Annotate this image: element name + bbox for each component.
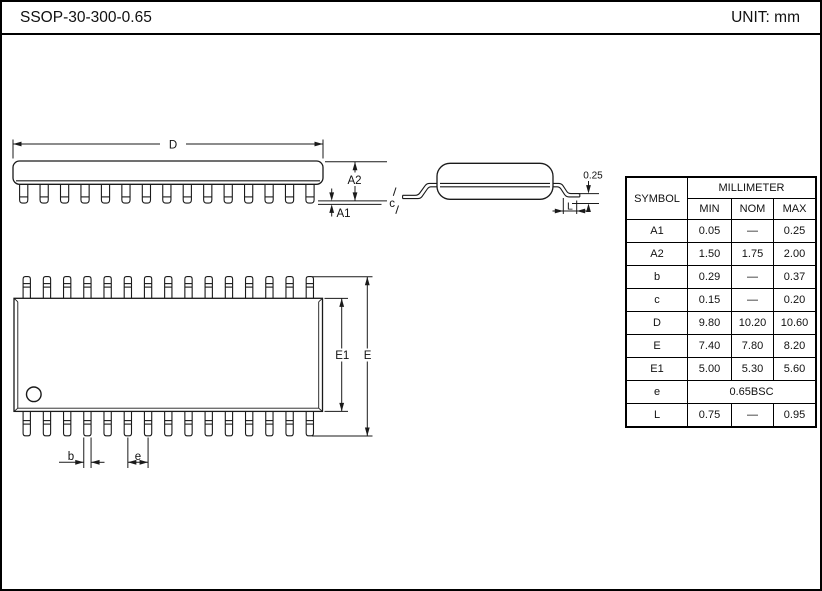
dim-b: b [59, 438, 105, 469]
symbol-cell: A2 [626, 243, 688, 266]
table-row: e 0.65BSC [626, 381, 816, 404]
dim-pitch: e [128, 438, 148, 469]
nom-cell: — [732, 220, 774, 243]
table-header-max: MAX [774, 199, 817, 220]
dim-label-l: L [567, 200, 573, 212]
max-cell: 2.00 [774, 243, 817, 266]
table-header-millimeter: MILLIMETER [688, 177, 817, 199]
symbol-cell: E [626, 335, 688, 358]
table-row: E1 5.00 5.30 5.60 [626, 358, 816, 381]
side-view: D A2 A1 [13, 139, 387, 220]
table-row: A2 1.50 1.75 2.00 [626, 243, 816, 266]
table-row: b 0.29 — 0.37 [626, 266, 816, 289]
min-cell: 9.80 [688, 312, 732, 335]
dim-l: L [553, 198, 588, 214]
nom-cell: 7.80 [732, 335, 774, 358]
nom-cell: 1.75 [732, 243, 774, 266]
symbol-cell: b [626, 266, 688, 289]
top-view: E1 E b [14, 277, 373, 468]
end-view-left-lead [403, 183, 437, 198]
table-header-nom: NOM [732, 199, 774, 220]
dim-label-b: b [68, 451, 74, 463]
dim-d: D [13, 139, 323, 158]
max-cell: 8.20 [774, 335, 817, 358]
nom-cell: 10.20 [732, 312, 774, 335]
symbol-cell: D [626, 312, 688, 335]
table-row: L 0.75 — 0.95 [626, 404, 816, 428]
top-view-pin-row-lower [23, 411, 313, 436]
span-cell: 0.65BSC [688, 381, 817, 404]
max-cell: 0.20 [774, 289, 817, 312]
symbol-cell: E1 [626, 358, 688, 381]
min-cell: 5.00 [688, 358, 732, 381]
top-view-pin-row-upper [23, 277, 313, 299]
nom-cell: 5.30 [732, 358, 774, 381]
table-row: A1 0.05 — 0.25 [626, 220, 816, 243]
max-cell: 5.60 [774, 358, 817, 381]
min-cell: 0.05 [688, 220, 732, 243]
dim-e1: E1 [325, 298, 350, 411]
dimension-table: SYMBOL MILLIMETER MIN NOM MAX A1 0.05 — … [625, 176, 817, 428]
dim-label-a1: A1 [337, 208, 351, 220]
dim-label-c: c [389, 198, 395, 210]
unit-label: UNIT: mm [731, 9, 800, 27]
min-cell: 0.29 [688, 266, 732, 289]
dim-label-pitch: e [135, 451, 141, 463]
end-view-right-lead [553, 183, 580, 197]
dim-c: c [389, 188, 398, 214]
dim-label-e1: E1 [335, 350, 349, 362]
pin1-indicator [27, 387, 42, 402]
dim-label-e: E [364, 350, 372, 362]
nom-cell: — [732, 289, 774, 312]
min-cell: 1.50 [688, 243, 732, 266]
min-cell: 0.15 [688, 289, 732, 312]
dim-label-d: D [169, 139, 177, 151]
max-cell: 0.25 [774, 220, 817, 243]
min-cell: 0.75 [688, 404, 732, 428]
nom-cell: — [732, 266, 774, 289]
dim-label-offset: 0.25 [583, 171, 603, 182]
dim-a2: A2 [318, 162, 387, 205]
table-row: E 7.40 7.80 8.20 [626, 335, 816, 358]
end-view-body [437, 163, 553, 199]
symbol-cell: L [626, 404, 688, 428]
symbol-cell: e [626, 381, 688, 404]
symbol-cell: c [626, 289, 688, 312]
table-row: c 0.15 — 0.20 [626, 289, 816, 312]
package-datasheet-page: SSOP-30-300-0.65 UNIT: mm [0, 0, 822, 591]
table-header-symbol: SYMBOL [626, 177, 688, 220]
side-view-pin-row [20, 184, 315, 203]
max-cell: 0.37 [774, 266, 817, 289]
dim-label-a2: A2 [348, 175, 362, 187]
end-view: c 0.25 L [389, 163, 603, 214]
symbol-cell: A1 [626, 220, 688, 243]
table-row: D 9.80 10.20 10.60 [626, 312, 816, 335]
max-cell: 10.60 [774, 312, 817, 335]
package-title: SSOP-30-300-0.65 [20, 9, 152, 27]
nom-cell: — [732, 404, 774, 428]
top-view-body [14, 298, 323, 411]
title-bar: SSOP-30-300-0.65 UNIT: mm [2, 2, 820, 35]
min-cell: 7.40 [688, 335, 732, 358]
table-header-min: MIN [688, 199, 732, 220]
max-cell: 0.95 [774, 404, 817, 428]
